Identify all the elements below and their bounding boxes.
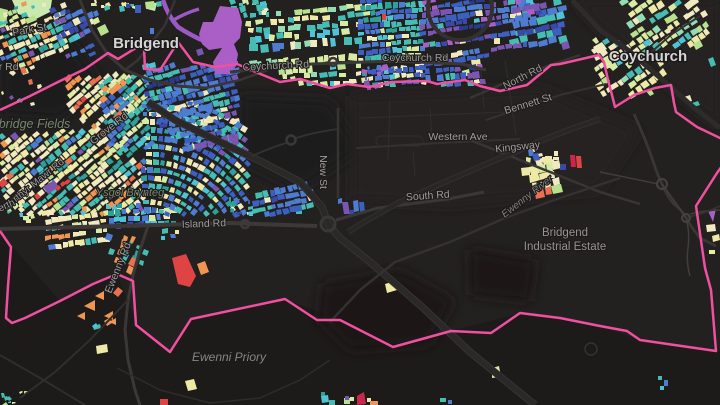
svg-text:Newbridge Fields: Newbridge Fields — [0, 117, 70, 131]
svg-text:yr Rd: yr Rd — [0, 61, 19, 73]
svg-text:Industrial Estate: Industrial Estate — [524, 241, 606, 253]
svg-text:Ewenni Priory: Ewenni Priory — [192, 350, 267, 364]
svg-text:Coychurch: Coychurch — [609, 48, 687, 65]
svg-text:New St: New St — [317, 155, 329, 189]
svg-text:Bridgend: Bridgend — [542, 227, 588, 239]
svg-text:Coychurch Rd: Coychurch Rd — [382, 52, 449, 64]
svg-text:Island Rd: Island Rd — [182, 217, 227, 231]
svg-text:Bridgend: Bridgend — [113, 35, 179, 52]
svg-text:Ysgol Brynteg: Ysgol Brynteg — [96, 187, 165, 199]
svg-text:Western Ave: Western Ave — [428, 131, 487, 143]
